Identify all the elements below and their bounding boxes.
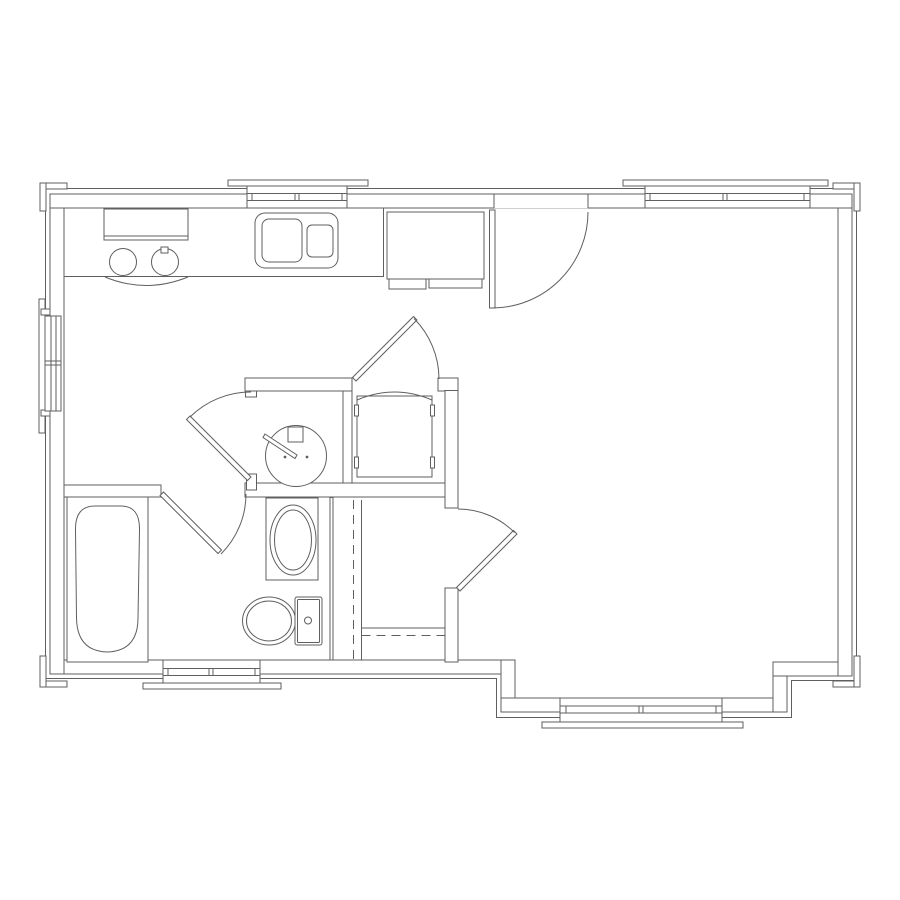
entry-door: [490, 194, 589, 308]
kitchen-sink: [255, 213, 338, 268]
door-hall-bath: [187, 392, 252, 481]
vanity: [266, 498, 318, 580]
floor-plan-image: [0, 0, 900, 900]
window-kitchen: [228, 180, 368, 208]
window-bath-bottom: [143, 660, 281, 689]
closet-shelving: [330, 498, 445, 661]
window-bay: [542, 698, 743, 728]
washer: [355, 392, 435, 477]
range: [104, 209, 188, 286]
door-bathroom: [160, 492, 246, 554]
window-greatroom-top: [623, 180, 828, 208]
refrigerator: [387, 212, 484, 289]
bathtub: [67, 497, 148, 662]
round-basin: [263, 426, 327, 487]
kitchen-counter: [64, 208, 384, 277]
door-closet-greatroom: [457, 509, 518, 591]
toilet: [243, 597, 323, 645]
door-wd-closet: [353, 317, 440, 382]
floor-plan-page: [0, 0, 900, 900]
